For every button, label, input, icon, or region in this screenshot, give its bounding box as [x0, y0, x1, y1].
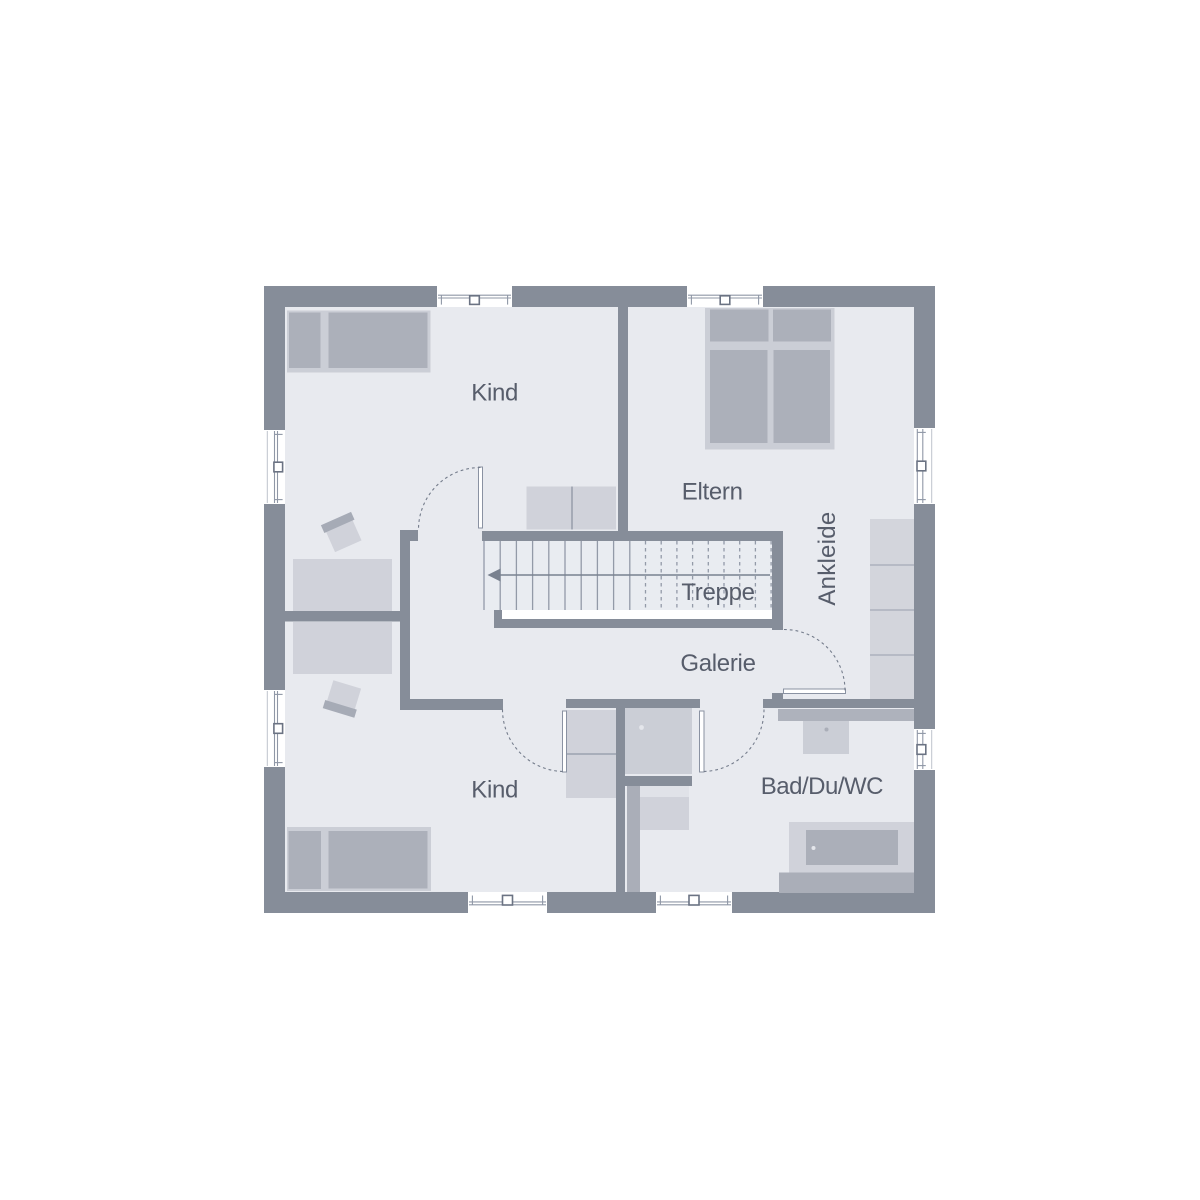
- svg-text:Kind: Kind: [471, 777, 518, 804]
- svg-text:Ankleide: Ankleide: [814, 512, 841, 606]
- svg-text:Eltern: Eltern: [682, 478, 743, 505]
- svg-text:Treppe: Treppe: [681, 579, 754, 606]
- svg-text:Bad/Du/WC: Bad/Du/WC: [761, 773, 883, 800]
- svg-text:Kind: Kind: [471, 379, 518, 406]
- svg-text:Galerie: Galerie: [680, 650, 755, 677]
